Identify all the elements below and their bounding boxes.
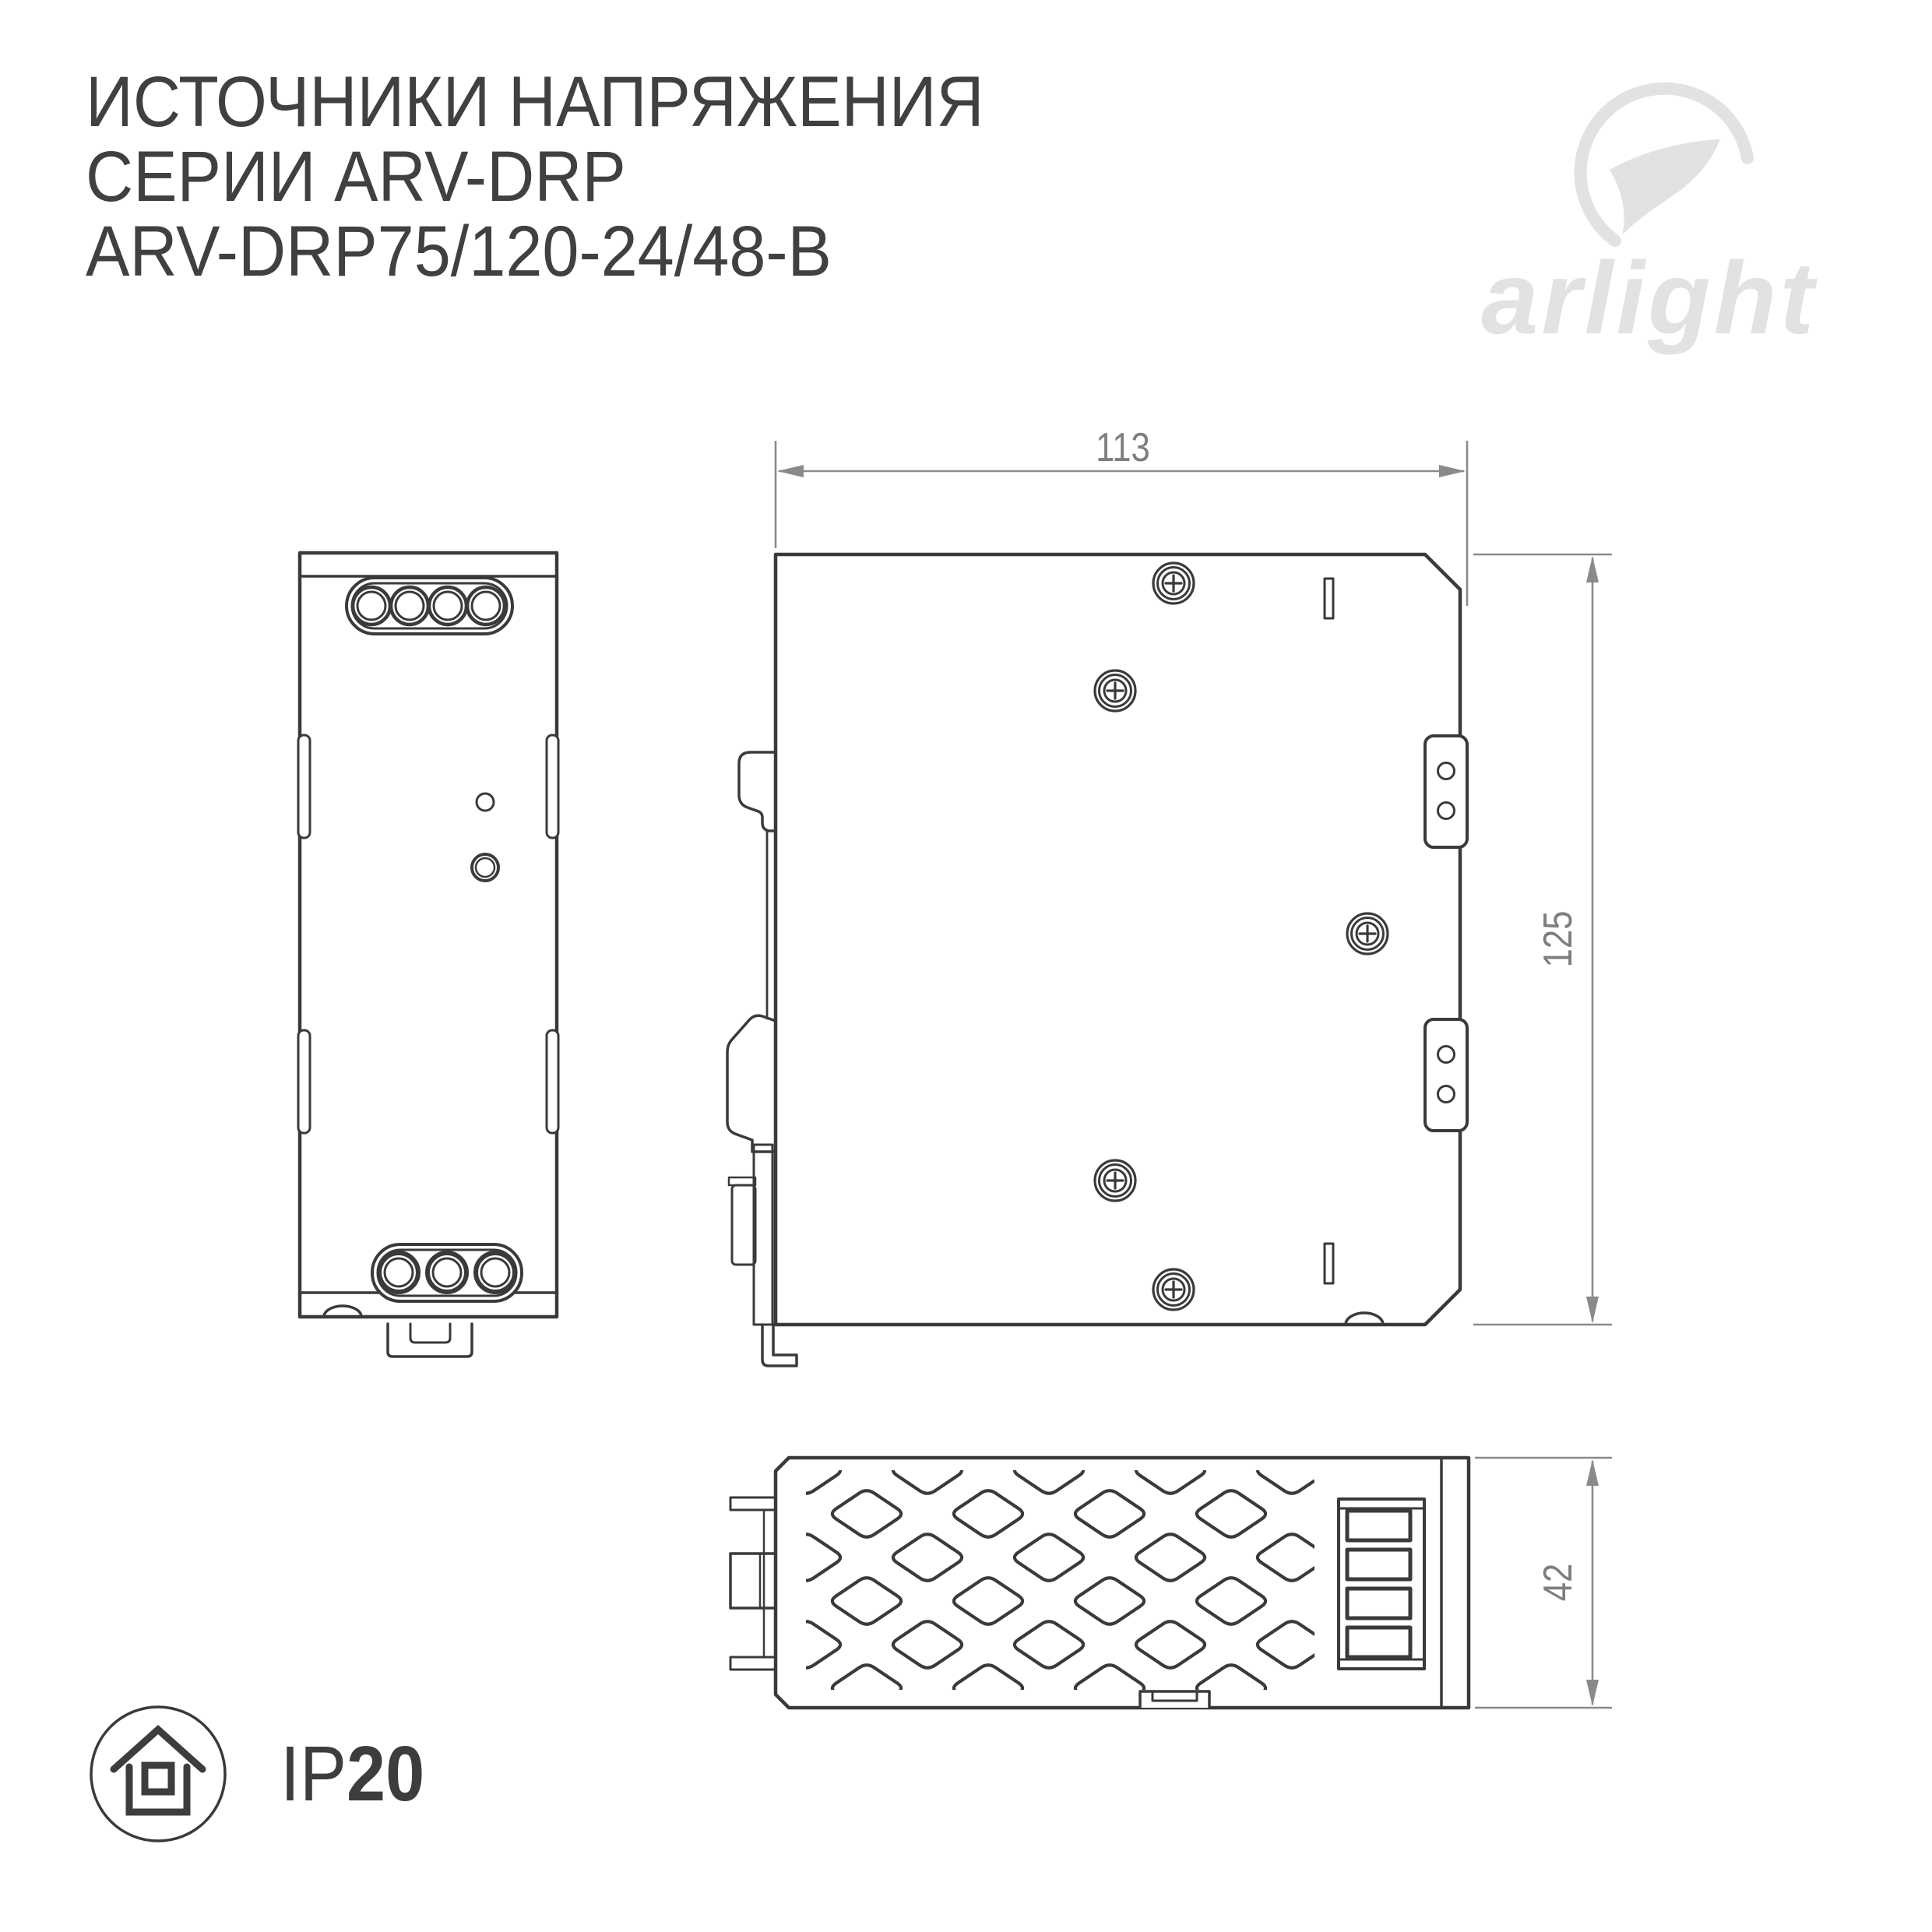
ip-rating-prefix: IP	[280, 1731, 347, 1818]
arrow-right-icon	[1439, 465, 1466, 477]
din-release-lever	[762, 1325, 797, 1366]
logo-wordmark: arlight	[1481, 241, 1818, 355]
dimension-height: 125	[1473, 554, 1612, 1325]
arrow-down-icon	[1586, 1680, 1599, 1706]
side-vent-slot	[547, 1030, 558, 1133]
ip-rating-value: 20	[347, 1731, 424, 1818]
front-din-clip-notch	[410, 1324, 450, 1343]
terminal-block-bottom	[1339, 1499, 1424, 1669]
technical-drawing: ИСТОЧНИКИ НАПРЯЖЕНИЯ СЕРИИ ARV-DRP ARV-D…	[0, 0, 1932, 1932]
ip-rating-label: IP20	[280, 1731, 424, 1818]
front-view	[298, 553, 558, 1357]
arrow-left-icon	[777, 465, 804, 477]
side-view	[727, 554, 1467, 1366]
title-line-1: ИСТОЧНИКИ НАПРЯЖЕНИЯ	[86, 62, 984, 142]
dimension-depth-value: 42	[1536, 1564, 1581, 1602]
din-middle-hook	[727, 1015, 776, 1152]
side-vent-slot	[298, 735, 310, 838]
din-clip-bar	[754, 1145, 772, 1325]
title-line-2: СЕРИИ ARV-DRP	[86, 136, 626, 216]
front-body	[300, 553, 557, 1317]
bottom-view	[730, 1458, 1469, 1708]
arrow-up-icon	[1586, 1459, 1599, 1486]
front-din-clip-tab	[388, 1324, 472, 1357]
vent-mesh	[806, 1470, 1314, 1690]
ip20-badge: IP20	[91, 1707, 424, 1841]
home-icon	[114, 1730, 202, 1812]
dimension-width-value: 113	[1096, 426, 1150, 470]
title-line-3: ARV-DRP75/120-24/48-B	[86, 211, 832, 291]
arrow-down-icon	[1586, 1297, 1599, 1323]
logo-check-icon	[1610, 139, 1720, 235]
bottom-din-clip-parts	[730, 1497, 776, 1670]
dimension-height-value: 125	[1536, 911, 1581, 968]
side-vent-slot	[547, 735, 558, 838]
page-title: ИСТОЧНИКИ НАПРЯЖЕНИЯ СЕРИИ ARV-DRP ARV-D…	[86, 62, 984, 291]
side-vent-slot	[298, 1030, 310, 1133]
output-terminal-holes	[379, 1253, 515, 1292]
terminal-block-side	[1425, 736, 1467, 847]
arrow-up-icon	[1586, 556, 1599, 582]
arlight-logo: arlight	[1481, 89, 1818, 355]
terminal-block-side	[1425, 1019, 1467, 1131]
dimension-depth: 42	[1475, 1458, 1612, 1708]
din-clip-block	[732, 1185, 755, 1265]
datasheet-page: ИСТОЧНИКИ НАПРЯЖЕНИЯ СЕРИИ ARV-DRP ARV-D…	[0, 0, 1932, 1932]
din-top-hook	[739, 752, 776, 831]
